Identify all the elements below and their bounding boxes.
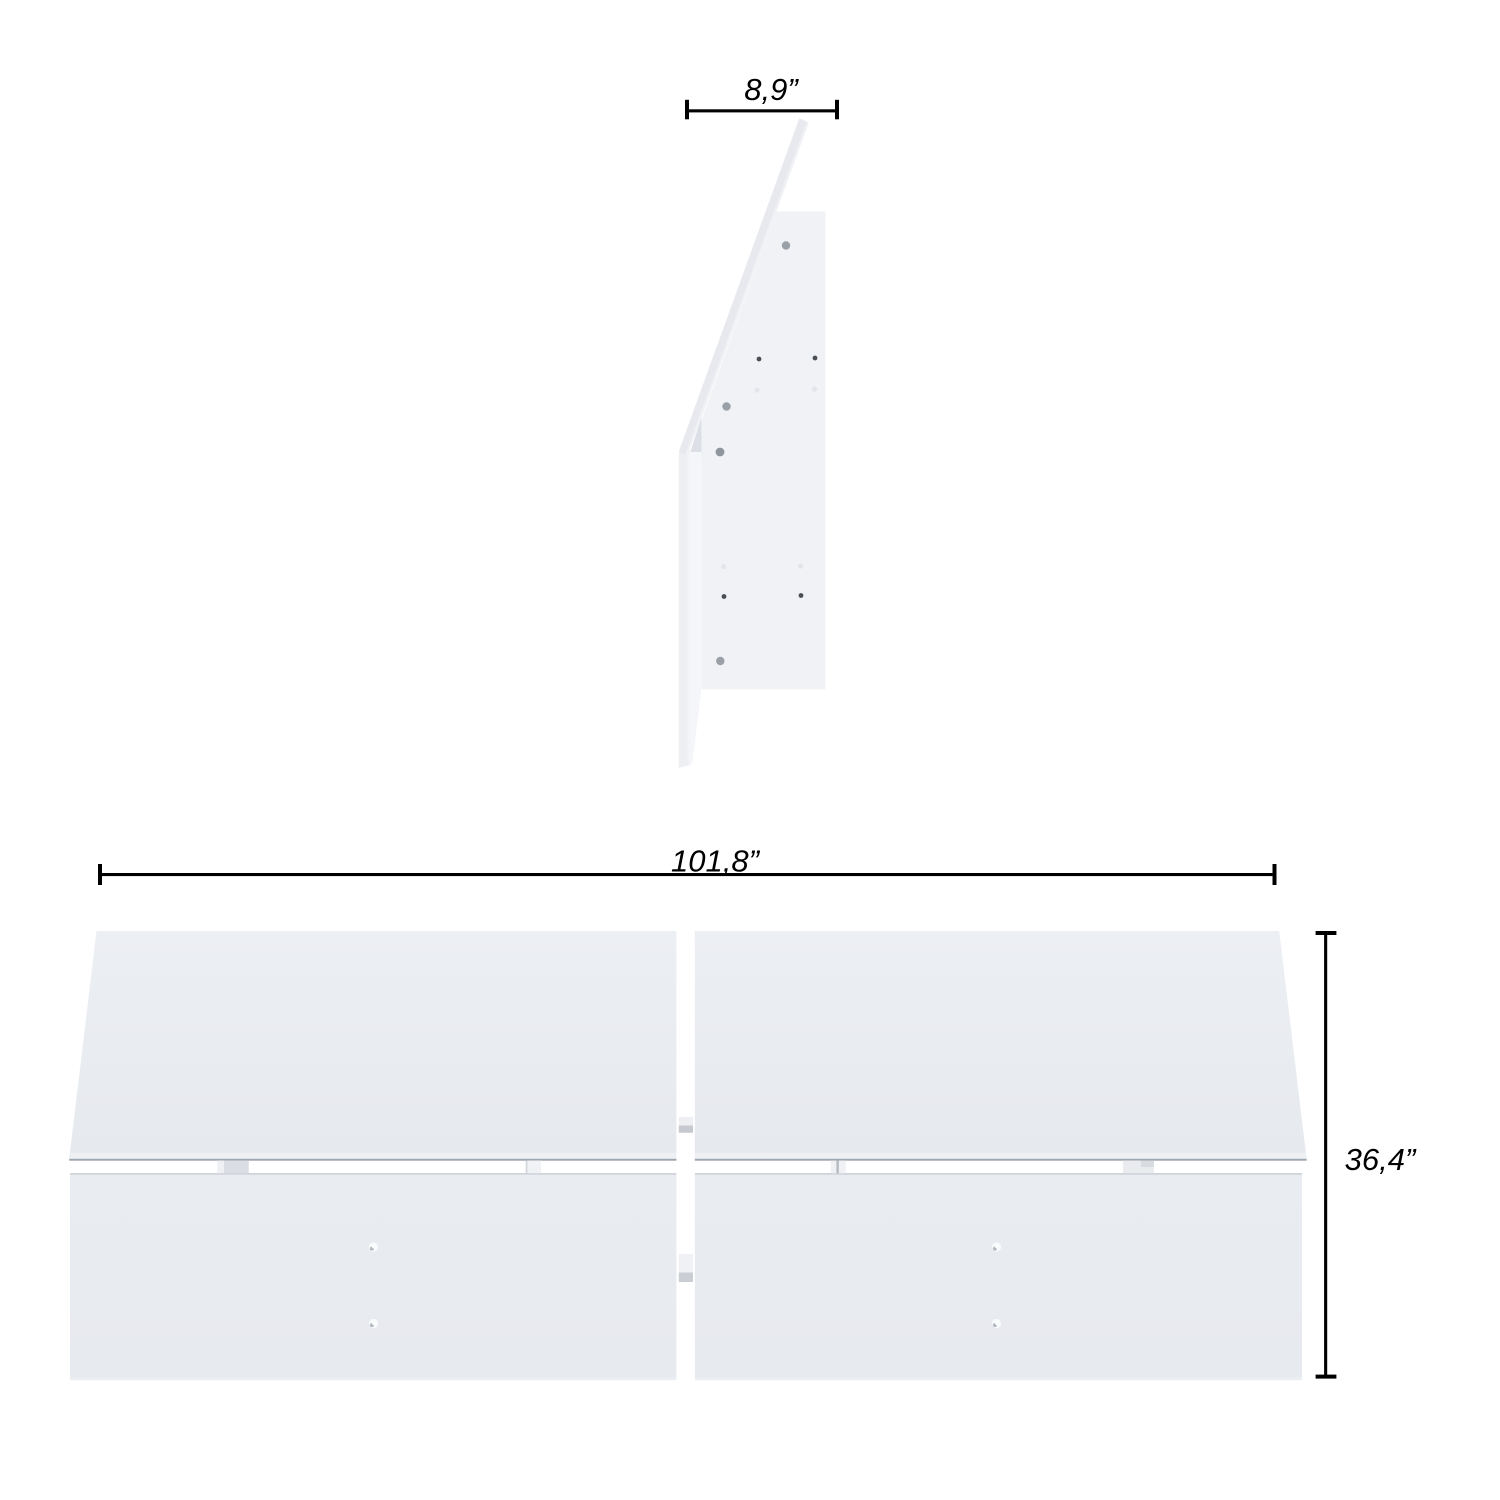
svg-text:36,4”: 36,4” (1345, 1142, 1417, 1177)
svg-text:101,8”: 101,8” (671, 844, 761, 879)
svg-text:8,9”: 8,9” (744, 72, 799, 107)
